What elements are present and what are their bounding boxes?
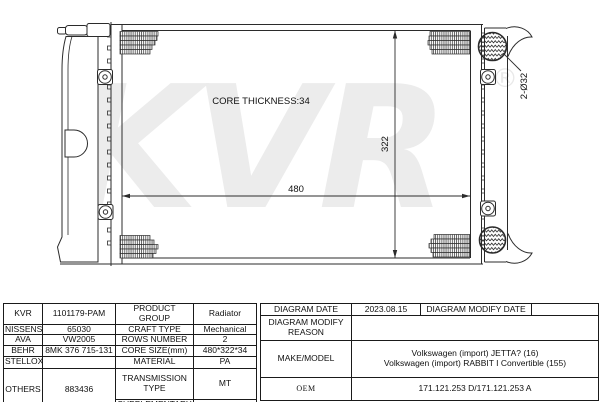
info-table: DIAGRAM DATE 2023.08.15 DIAGRAM MODIFY D… — [260, 303, 599, 401]
diagram-modify-date-value-cell — [532, 304, 599, 316]
attr-label-cell: MATERIAL — [116, 356, 194, 368]
port-top-right — [479, 33, 507, 61]
attr-value-cell: 480*322*34 — [194, 346, 257, 357]
attr-value-cell: MT — [194, 368, 257, 399]
oem-value-cell: 171.121.253 D/171.121.253 A — [352, 378, 599, 401]
brand-cell: NISSENS — [4, 324, 43, 335]
attr-label-cell: CRAFT TYPE — [116, 324, 194, 335]
height-dim-label: 322 — [380, 136, 391, 152]
modify-reason-label-cell: DIAGRAM MODIFY REASON — [261, 316, 352, 341]
attr-label-cell: PRODUCT GROUP — [116, 304, 194, 325]
fin-block-bottom-right — [429, 235, 470, 258]
table-row: BEHR 8MK 376 715-131 CORE SIZE(mm) 480*3… — [4, 346, 257, 357]
attr-value-cell: Radiator — [194, 304, 257, 325]
radiator-diagram: KVR ® — [0, 0, 600, 302]
catalog-page: KVR ® — [0, 0, 600, 402]
brand-value-cell: 8MK 376 715-131 — [43, 346, 116, 357]
attr-label-cell: ROWS NUMBER — [116, 335, 194, 346]
table-row: OEM 171.121.253 D/171.121.253 A — [261, 378, 599, 401]
table-row: MAKE/MODEL Volkswagen (import) JETTA? (1… — [261, 341, 599, 378]
attr-value-cell: 2 — [194, 335, 257, 346]
attr-label-cell: CORE SIZE(mm) — [116, 346, 194, 357]
table-row: OTHERS 883436 TRANSMISSION TYPE MT — [4, 368, 257, 399]
brand-cell: OTHERS — [4, 368, 43, 402]
brand-value-cell: VW2005 — [43, 335, 116, 346]
core-thickness-label: CORE THICKNESS:34 — [212, 96, 310, 107]
diagram-modify-date-label-cell: DIAGRAM MODIFY DATE — [421, 304, 532, 316]
table-row: DIAGRAM DATE 2023.08.15 DIAGRAM MODIFY D… — [261, 304, 599, 316]
brand-cell: BEHR — [4, 346, 43, 357]
oem-label-cell: OEM — [261, 378, 352, 401]
brand-value-cell: 1101179-PAM — [43, 304, 116, 325]
brand-value-cell: 65030 — [43, 324, 116, 335]
modify-reason-value-cell — [352, 316, 599, 341]
make-model-line: Volkswagen (import) RABBIT I Convertible… — [353, 359, 597, 369]
attr-value-cell: PA — [194, 356, 257, 368]
port-bottom-right — [480, 227, 506, 253]
brand-cell: KVR — [4, 304, 43, 325]
table-row: DIAGRAM MODIFY REASON — [261, 316, 599, 341]
port-dim-label: 2-Ø32 — [519, 73, 530, 99]
brand-value-cell: 883436 — [43, 368, 116, 402]
table-row: STELLOX MATERIAL PA — [4, 356, 257, 368]
fin-block-top-right — [428, 32, 470, 55]
make-model-label-cell: MAKE/MODEL — [261, 341, 352, 378]
table-row: NISSENS 65030 CRAFT TYPE Mechanical — [4, 324, 257, 335]
spec-table: KVR 1101179-PAM PRODUCT GROUP Radiator N… — [3, 303, 257, 402]
attr-value-cell: Mechanical — [194, 324, 257, 335]
brand-value-cell — [43, 356, 116, 368]
make-model-value-cell: Volkswagen (import) JETTA? (16) Volkswag… — [352, 341, 599, 378]
table-row: AVA VW2005 ROWS NUMBER 2 — [4, 335, 257, 346]
attr-label-cell: TRANSMISSION TYPE — [116, 368, 194, 399]
width-dim-label: 480 — [288, 184, 304, 195]
diagram-date-label-cell: DIAGRAM DATE — [261, 304, 352, 316]
table-row: KVR 1101179-PAM PRODUCT GROUP Radiator — [4, 304, 257, 325]
diagram-date-value-cell: 2023.08.15 — [352, 304, 421, 316]
brand-cell: STELLOX — [4, 356, 43, 368]
brand-cell: AVA — [4, 335, 43, 346]
